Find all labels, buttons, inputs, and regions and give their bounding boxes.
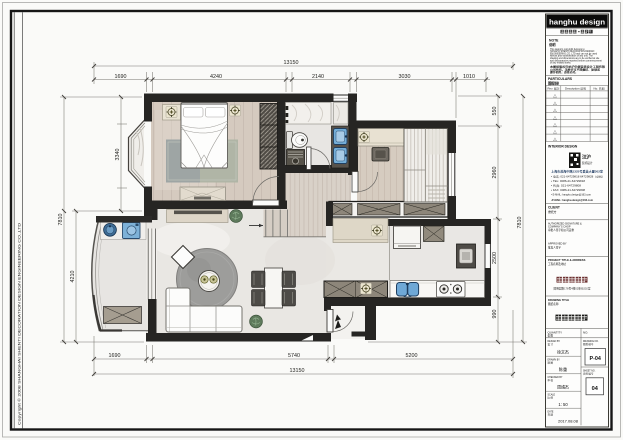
svg-text:990: 990 xyxy=(492,310,498,319)
svg-text:比例: 比例 xyxy=(548,396,554,400)
svg-text:页码编号: 页码编号 xyxy=(583,372,594,376)
svg-text:13150: 13150 xyxy=(284,60,299,66)
svg-text:说明: 说明 xyxy=(549,42,556,47)
svg-text:图纸编号: 图纸编号 xyxy=(583,342,594,346)
svg-text:1010: 1010 xyxy=(463,74,475,80)
svg-text:▪ E-MAIL: hanghu.design@163.co: ▪ E-MAIL: hanghu.design@163.com xyxy=(551,194,591,197)
svg-text:5200: 5200 xyxy=(406,353,418,359)
svg-text:P-04: P-04 xyxy=(590,356,601,362)
svg-text:hanghu design: hanghu design xyxy=(549,17,605,26)
svg-text:制图: 制图 xyxy=(548,361,554,365)
svg-text:徐文杰: 徐文杰 xyxy=(557,348,569,355)
svg-text:NO.: NO. xyxy=(583,330,588,334)
svg-text:550: 550 xyxy=(492,107,498,116)
svg-text:2960: 2960 xyxy=(492,167,498,179)
svg-text:5740: 5740 xyxy=(288,353,300,359)
svg-text:图纸目录: 图纸目录 xyxy=(548,80,560,85)
svg-text:图纸名称: 图纸名称 xyxy=(548,302,559,306)
svg-text:4210: 4210 xyxy=(70,271,76,283)
svg-text:△: △ xyxy=(553,108,557,113)
svg-text:04: 04 xyxy=(592,386,599,392)
svg-text:▪P-MAIL: hanghu.design@163.com: ▪P-MAIL: hanghu.design@163.com xyxy=(551,199,594,202)
svg-text:DRAWING TITLE: DRAWING TITLE xyxy=(548,298,569,302)
svg-text:▪ FAX: 0086-21-64729808: ▪ FAX: 0086-21-64729808 xyxy=(551,189,586,192)
svg-text:7810: 7810 xyxy=(58,214,64,226)
svg-text:Description 说明: Description 说明 xyxy=(565,86,587,90)
svg-text:of any related works.: of any related works. xyxy=(550,62,572,65)
svg-text:2140: 2140 xyxy=(312,74,324,80)
svg-text:PROJECT TITLE & ADDRESS: PROJECT TITLE & ADDRESS xyxy=(548,258,586,262)
svg-text:△: △ xyxy=(553,136,557,141)
svg-text:周靖杰: 周靖杰 xyxy=(557,384,569,391)
svg-text:3030: 3030 xyxy=(399,74,411,80)
svg-text:挪作他用，违者必究。: 挪作他用，违者必究。 xyxy=(550,70,578,74)
svg-text:Copyright © 2008 SHANGHAI SH: Copyright © 2008 SHANGHAI SHENTI DECORAT… xyxy=(17,222,21,425)
svg-text:委托方: 委托方 xyxy=(548,209,557,214)
svg-text:△: △ xyxy=(553,122,557,127)
svg-text:▪ TEL: 0086-21-64729818: ▪ TEL: 0086-21-64729818 xyxy=(551,180,586,183)
svg-text:批准人签字: 批准人签字 xyxy=(548,246,561,250)
svg-text:INTERIOR DESIGN: INTERIOR DESIGN xyxy=(548,144,578,148)
svg-text:工程名称及地址: 工程名称及地址 xyxy=(548,262,566,266)
svg-text:2017.08.08: 2017.08.08 xyxy=(558,418,579,423)
svg-text:圆明园路178号4幢02单元502室: 圆明园路178号4幢02单元502室 xyxy=(554,285,591,290)
svg-text:△: △ xyxy=(553,115,557,120)
svg-text:3340: 3340 xyxy=(115,149,121,161)
svg-text:Rev. 版次: Rev. 版次 xyxy=(548,86,561,90)
svg-text:日期: 日期 xyxy=(548,413,554,417)
svg-text:套数: 套数 xyxy=(548,334,554,338)
svg-text:▪ 电话: 021-64729818 64729828（总: ▪ 电话: 021-64729818 64729828（总机） xyxy=(551,175,605,179)
svg-text:△: △ xyxy=(553,93,557,98)
svg-text:No. 日期: No. 日期 xyxy=(594,86,606,90)
svg-text:审核: 审核 xyxy=(548,378,554,382)
svg-text:汉沪: 汉沪 xyxy=(582,154,591,161)
svg-text:1: 50: 1: 50 xyxy=(558,402,568,407)
svg-text:上海市淮海中路1325号爱美大厦302室: 上海市淮海中路1325号爱美大厦302室 xyxy=(551,168,603,173)
svg-text:4240: 4240 xyxy=(210,74,222,80)
svg-text:APPROVED BY: APPROVED BY xyxy=(548,242,567,246)
svg-text:1690: 1690 xyxy=(109,353,121,359)
svg-text:2500: 2500 xyxy=(492,252,498,264)
svg-text:△: △ xyxy=(553,100,557,105)
svg-text:1690: 1690 xyxy=(115,74,127,80)
svg-text:△: △ xyxy=(553,129,557,134)
svg-text:7810: 7810 xyxy=(517,217,523,229)
svg-text:审批人签字和公司盖章: 审批人签字和公司盖章 xyxy=(548,228,574,232)
svg-text:▪ 传真: 021-64729808: ▪ 传真: 021-64729808 xyxy=(551,184,582,188)
svg-text:设计: 设计 xyxy=(548,342,554,346)
svg-text:13150: 13150 xyxy=(290,368,305,374)
svg-text:陈重: 陈重 xyxy=(559,366,568,373)
svg-text:装饰设计: 装饰设计 xyxy=(582,161,593,165)
